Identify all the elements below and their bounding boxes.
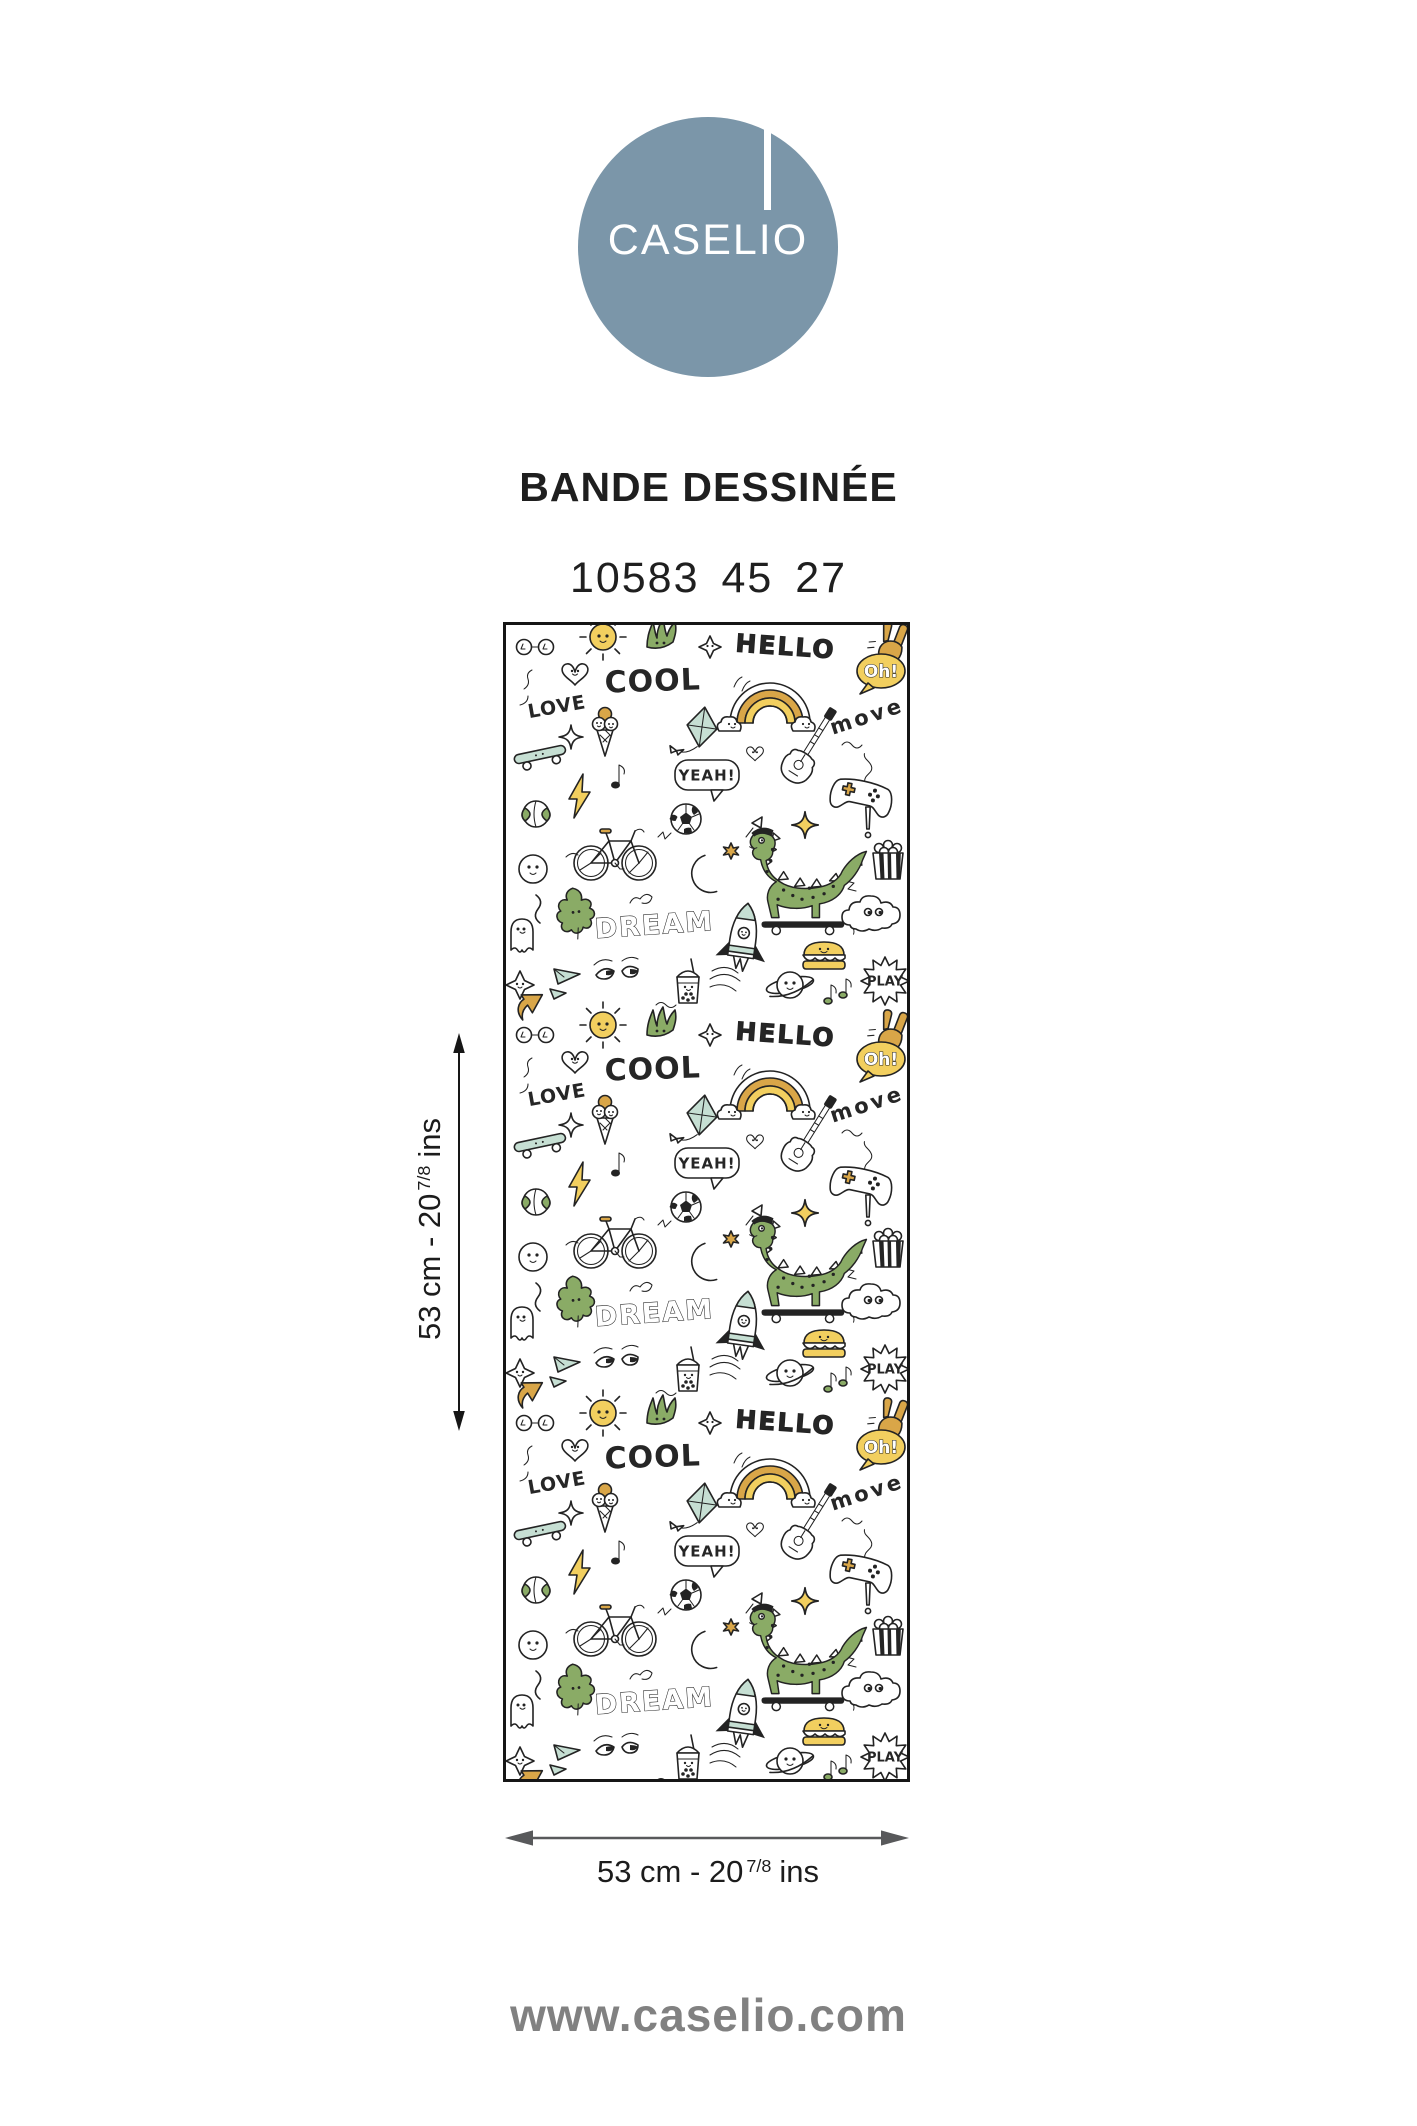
height-dimension-label: 53 cm - 207/8ins bbox=[412, 1118, 448, 1340]
width-dimension-label: 53 cm - 207/8ins bbox=[597, 1854, 819, 1890]
height-unit: ins bbox=[412, 1118, 447, 1158]
width-unit: ins bbox=[779, 1854, 819, 1889]
collection-title: BANDE DESSINÉE bbox=[0, 464, 1417, 511]
logo-i-bar-icon bbox=[764, 109, 771, 210]
wallpaper-pattern: HELLO bbox=[506, 625, 907, 1779]
website-url: www.caselio.com bbox=[0, 1988, 1417, 2042]
wallpaper-swatch: HELLO bbox=[503, 622, 910, 1782]
height-fraction: 7/8 bbox=[414, 1166, 434, 1191]
product-sheet: CASELIO BANDE DESSINÉE 10583 45 27 bbox=[0, 0, 1417, 2126]
caselio-logo: CASELIO bbox=[578, 117, 838, 377]
width-fraction: 7/8 bbox=[746, 1856, 771, 1876]
height-dimension-arrow bbox=[448, 1032, 470, 1432]
width-value: 53 cm - 20 bbox=[597, 1854, 743, 1889]
width-dimension-arrow bbox=[503, 1827, 911, 1849]
product-reference: 10583 45 27 bbox=[0, 554, 1417, 603]
logo-text: CASELIO bbox=[578, 216, 838, 265]
height-value: 53 cm - 20 bbox=[412, 1194, 447, 1340]
